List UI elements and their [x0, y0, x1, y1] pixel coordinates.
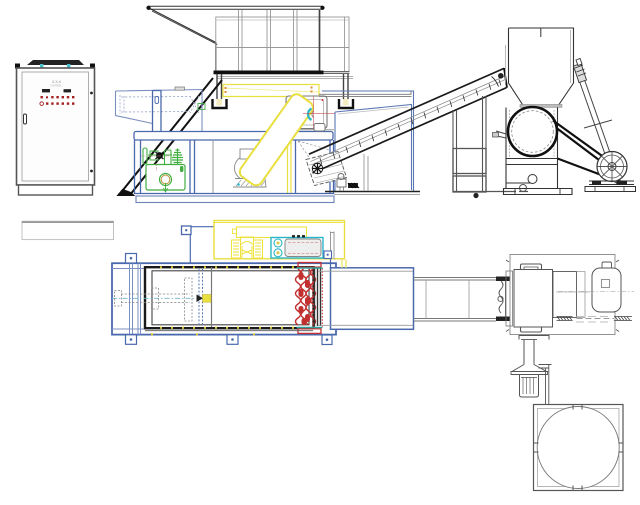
svg-text:CONTROL: CONTROL: [50, 85, 62, 88]
svg-text:X-X-X: X-X-X: [52, 80, 62, 84]
